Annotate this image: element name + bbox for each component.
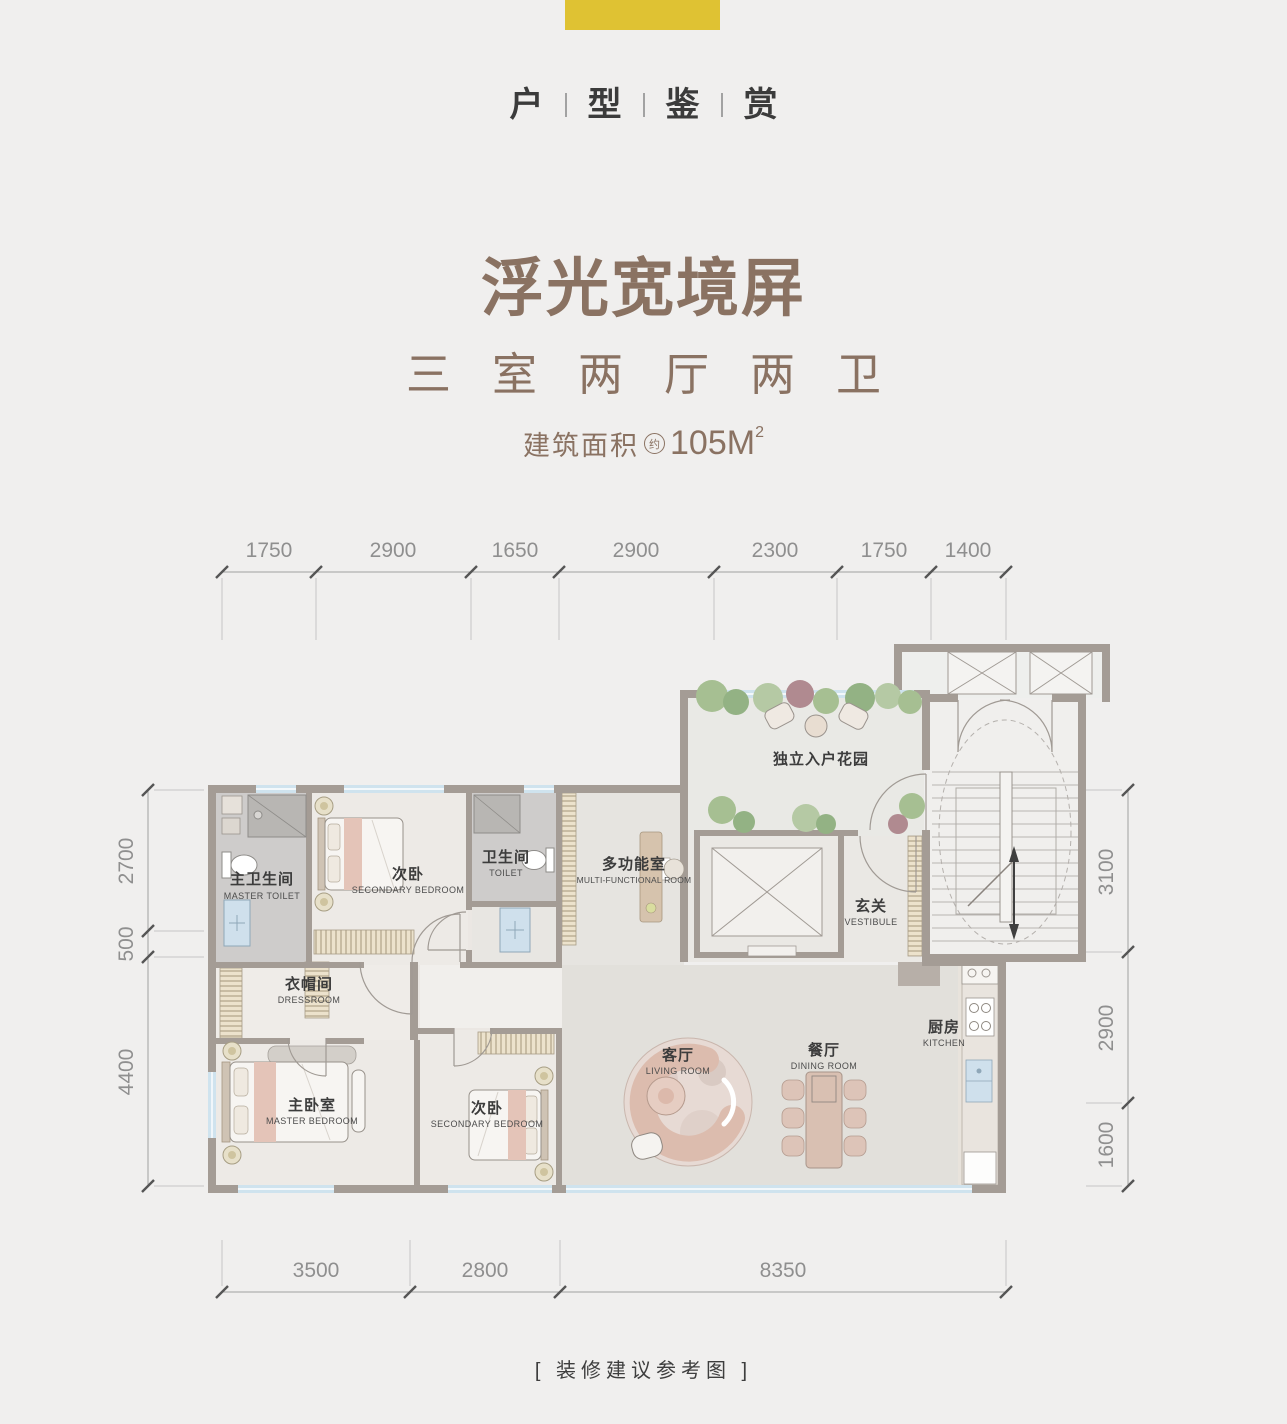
dim-top: 1650 [492, 539, 539, 562]
dim-top: 1400 [945, 539, 992, 562]
dim-top: 1750 [246, 539, 293, 562]
room-label-vestibule-en: VESTIBULE [844, 917, 897, 927]
room-label-dressroom: 衣帽间 [285, 975, 333, 993]
room-label-master-bedroom-en: MASTER BEDROOM [266, 1116, 358, 1126]
room-label-multi-functional: 多功能室 [602, 855, 666, 873]
dim-bottom: 8350 [760, 1259, 807, 1282]
room-label-vestibule: 玄关 [855, 897, 887, 915]
dim-top: 2900 [370, 539, 417, 562]
room-label-multi-functional-en: MULTI-FUNCTIONAL ROOM [577, 875, 692, 885]
room-label-dining-room: 餐厅 [808, 1041, 840, 1059]
room-label-entry-garden: 独立入户花园 [773, 750, 869, 768]
room-label-master-toilet: 主卫生间 [230, 870, 294, 888]
room-label-master-toilet-en: MASTER TOILET [224, 891, 300, 901]
room-label-secondary-bedroom-bottom-en: SECONDARY BEDROOM [431, 1119, 544, 1129]
room-label-kitchen: 厨房 [928, 1018, 960, 1036]
dining-furniture [782, 1072, 866, 1168]
dim-top: 2900 [613, 539, 660, 562]
dim-top: 2300 [752, 539, 799, 562]
room-label-living-room-en: LIVING ROOM [646, 1066, 710, 1076]
room-label-toilet: 卫生间 [482, 848, 530, 866]
dim-left: 2700 [115, 838, 138, 885]
room-label-secondary-bedroom-bottom: 次卧 [471, 1099, 503, 1117]
room-label-secondary-bedroom-top-en: SECONDARY BEDROOM [352, 885, 465, 895]
dim-left: 500 [115, 926, 138, 961]
room-label-master-bedroom: 主卧室 [288, 1096, 336, 1114]
room-label-kitchen-en: KITCHEN [923, 1038, 965, 1048]
room-label-dining-room-en: DINING ROOM [791, 1061, 857, 1071]
dim-top: 1750 [861, 539, 908, 562]
dim-right: 1600 [1095, 1122, 1118, 1169]
dim-right: 2900 [1095, 1005, 1118, 1052]
disclaimer-note: [ 装修建议参考图 ] [0, 1354, 1287, 1383]
room-label-living-room: 客厅 [661, 1046, 694, 1064]
dim-right: 3100 [1095, 849, 1118, 896]
room-label-dressroom-en: DRESSROOM [278, 995, 341, 1005]
dim-bottom: 2800 [462, 1259, 509, 1282]
dim-bottom: 3500 [293, 1259, 340, 1282]
dim-left: 4400 [115, 1049, 138, 1096]
room-label-secondary-bedroom-top: 次卧 [392, 865, 424, 883]
room-label-toilet-en: TOILET [489, 868, 523, 878]
floor-plan: 1750 2900 1650 2900 2300 1750 1400 3500 … [0, 0, 1287, 1424]
